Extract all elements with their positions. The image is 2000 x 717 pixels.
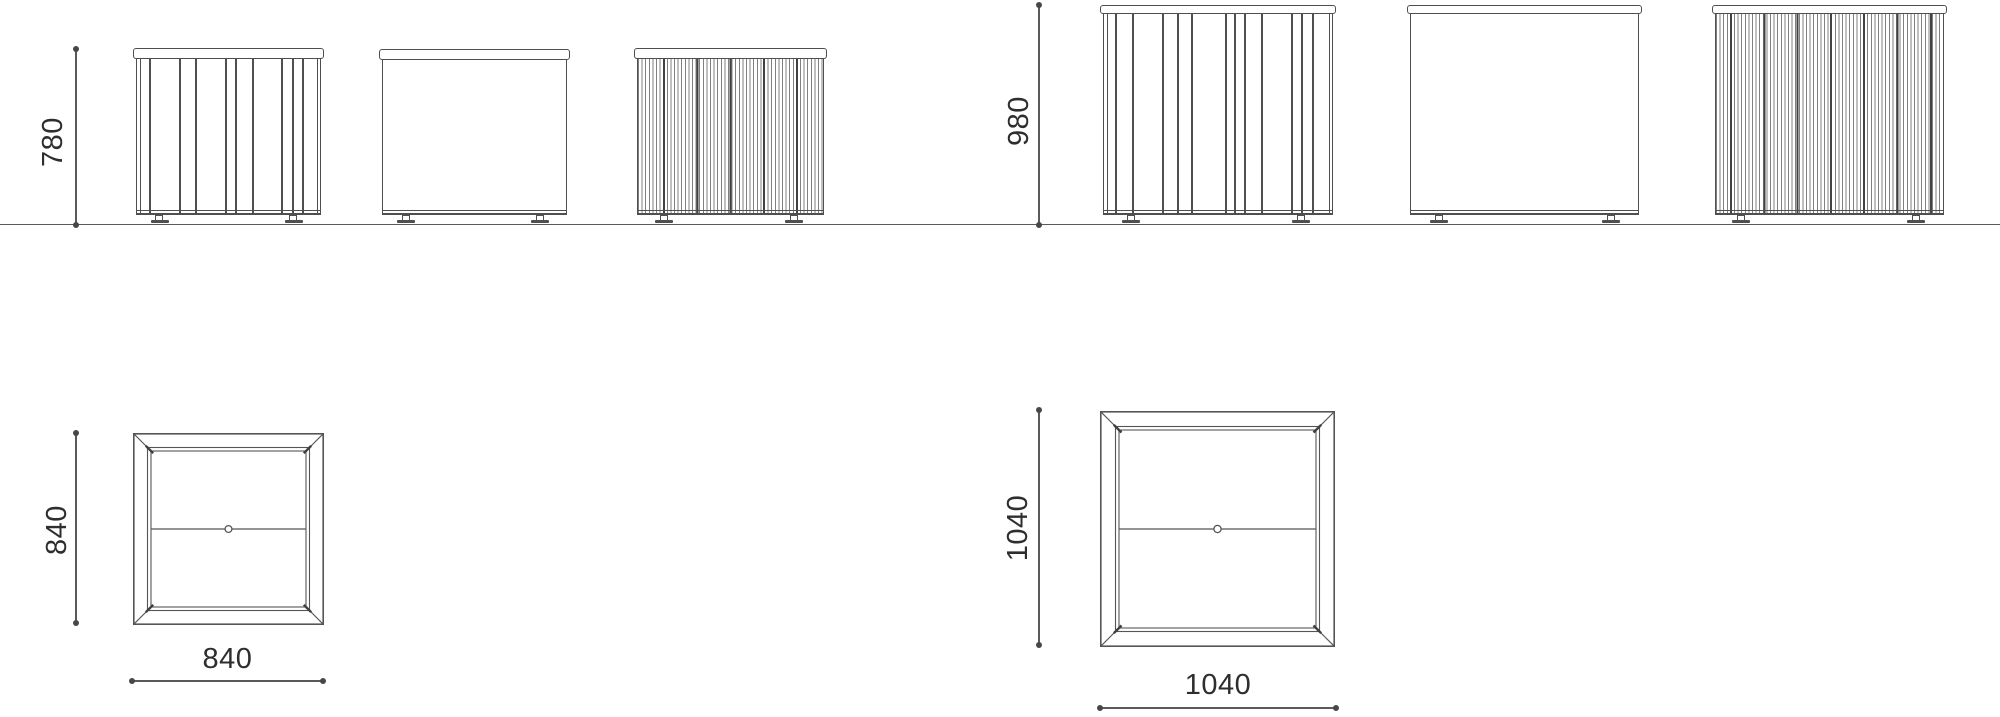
depth-dimension-label: 840 bbox=[42, 460, 72, 600]
slat-line bbox=[1162, 14, 1164, 213]
slat-line bbox=[179, 59, 181, 213]
slatted-body bbox=[1103, 13, 1333, 215]
slat-line bbox=[149, 59, 151, 213]
foot-plate bbox=[1732, 220, 1750, 223]
dimension-endpoint-dot bbox=[1036, 2, 1042, 8]
foot-plate bbox=[397, 220, 415, 223]
foot-plate bbox=[1292, 220, 1310, 223]
slat-line bbox=[1261, 14, 1263, 213]
slat-line bbox=[1132, 14, 1134, 213]
slat-line bbox=[1291, 14, 1293, 213]
dimension-line bbox=[132, 680, 323, 682]
dimension-endpoint-dot bbox=[1036, 407, 1042, 413]
dimension-endpoint-dot bbox=[73, 620, 79, 626]
dimension-line bbox=[75, 49, 77, 225]
slat-line bbox=[1329, 14, 1330, 213]
ribbed-body bbox=[637, 58, 824, 215]
height-dimension-label: 780 bbox=[38, 72, 68, 212]
panel-divider-lines bbox=[1730, 14, 1932, 213]
dimension-line bbox=[1100, 707, 1336, 709]
foot-plate bbox=[655, 220, 673, 223]
slat-line bbox=[1244, 14, 1246, 213]
slat-line bbox=[235, 59, 237, 213]
slat-line bbox=[1107, 14, 1108, 213]
width-dimension-label: 840 bbox=[158, 644, 298, 674]
dimension-endpoint-dot bbox=[73, 222, 79, 228]
plain-body bbox=[1410, 13, 1639, 215]
height-dimension-label: 980 bbox=[1004, 51, 1034, 191]
foot-plate bbox=[1430, 220, 1448, 223]
ground-line bbox=[0, 224, 2000, 225]
slatted-body bbox=[136, 58, 321, 215]
width-dimension-label: 1040 bbox=[1148, 670, 1288, 700]
foot-plate bbox=[285, 220, 303, 223]
dimension-line bbox=[1038, 410, 1040, 645]
slat-line bbox=[195, 59, 197, 213]
plan-drawing-large bbox=[1100, 411, 1335, 647]
foot-plate bbox=[1907, 220, 1925, 223]
foot-plate bbox=[531, 220, 549, 223]
ribbed-body bbox=[1715, 13, 1944, 215]
dimension-line bbox=[1038, 5, 1040, 225]
slat-line bbox=[1312, 14, 1314, 213]
slat-line bbox=[292, 59, 294, 213]
technical-drawing-canvas: 780 bbox=[0, 0, 2000, 717]
slat-line bbox=[302, 59, 304, 213]
slat-line bbox=[225, 59, 227, 213]
depth-dimension-label: 1040 bbox=[1003, 458, 1033, 598]
foot-plate bbox=[1602, 220, 1620, 223]
slat-line bbox=[1191, 14, 1193, 213]
slat-line bbox=[1234, 14, 1236, 213]
plan-drawing-small bbox=[133, 433, 324, 625]
dimension-endpoint-dot bbox=[73, 46, 79, 52]
plain-body bbox=[382, 59, 567, 215]
slat-line bbox=[1115, 14, 1117, 213]
slat-line bbox=[317, 59, 318, 213]
slat-line bbox=[1301, 14, 1303, 213]
dimension-endpoint-dot bbox=[320, 678, 326, 684]
dimension-line bbox=[75, 433, 77, 623]
dimension-endpoint-dot bbox=[73, 430, 79, 436]
slat-line bbox=[252, 59, 254, 213]
dimension-endpoint-dot bbox=[1097, 705, 1103, 711]
foot-plate bbox=[151, 220, 169, 223]
foot-plate bbox=[785, 220, 803, 223]
dimension-endpoint-dot bbox=[1036, 642, 1042, 648]
foot-plate bbox=[1122, 220, 1140, 223]
panel-divider-lines bbox=[663, 59, 803, 213]
dimension-endpoint-dot bbox=[129, 678, 135, 684]
slat-line bbox=[1177, 14, 1179, 213]
slat-line bbox=[1225, 14, 1227, 213]
slat-line bbox=[140, 59, 141, 213]
dimension-endpoint-dot bbox=[1333, 705, 1339, 711]
dimension-endpoint-dot bbox=[1036, 222, 1042, 228]
slat-line bbox=[281, 59, 283, 213]
